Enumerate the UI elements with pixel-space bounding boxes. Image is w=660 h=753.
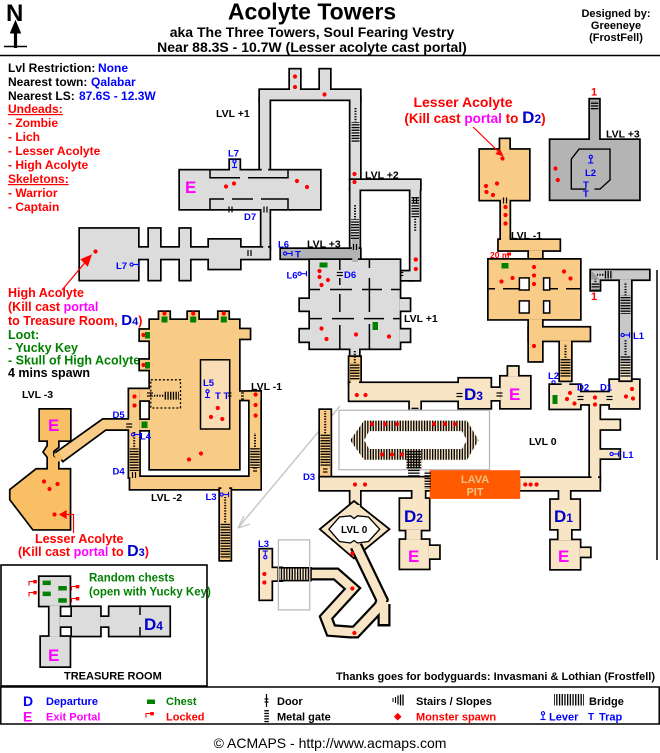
svg-text:Nearest town:: Nearest town: (8, 75, 87, 89)
svg-text:D: D (23, 693, 33, 709)
svg-text:LVL 0: LVL 0 (341, 525, 368, 536)
svg-text:E: E (408, 547, 419, 566)
svg-text:4 mins spawn: 4 mins spawn (8, 366, 90, 380)
svg-text:D1: D1 (600, 383, 613, 394)
svg-text:LVL +2: LVL +2 (365, 170, 399, 182)
svg-text:- Captain: - Captain (8, 200, 59, 214)
svg-text:Monster spawn: Monster spawn (416, 712, 496, 724)
svg-text:(Kill cast portal: (Kill cast portal (8, 300, 98, 314)
svg-text:- Zombie: - Zombie (8, 116, 58, 130)
svg-text:- Lesser Acolyte: - Lesser Acolyte (8, 144, 101, 158)
svg-text:LVL -2: LVL -2 (151, 492, 182, 504)
svg-text:Greeneye: Greeneye (591, 20, 641, 32)
svg-text:(Kill cast portal to D2): (Kill cast portal to D2) (404, 108, 545, 127)
svg-text:Door: Door (277, 696, 303, 708)
svg-text:Bridge: Bridge (589, 696, 624, 708)
svg-text:- High Acolyte: - High Acolyte (8, 158, 89, 172)
svg-text:L5: L5 (203, 378, 215, 389)
svg-text:(open with Yucky Key): (open with Yucky Key) (89, 587, 211, 599)
svg-text:E: E (558, 547, 569, 566)
svg-text:Lesser Acolyte: Lesser Acolyte (413, 94, 512, 110)
svg-text:L6: L6 (278, 240, 289, 251)
svg-text:LAVA: LAVA (461, 474, 489, 486)
svg-text:Locked: Locked (166, 712, 205, 724)
svg-text:LVL +3: LVL +3 (307, 239, 341, 251)
svg-text:(Kill cast portal to D3): (Kill cast portal to D3) (18, 543, 149, 560)
svg-text:Acolyte Towers: Acolyte Towers (228, 0, 396, 25)
svg-text:L3: L3 (258, 539, 269, 550)
svg-text:LVL -3: LVL -3 (22, 389, 53, 401)
svg-text:1: 1 (591, 291, 597, 303)
svg-text:87.6S - 12.3W: 87.6S - 12.3W (79, 89, 156, 103)
svg-text:D7: D7 (244, 212, 256, 223)
svg-text:Designed by:: Designed by: (581, 8, 650, 20)
svg-text:to Treasure Room, D4): to Treasure Room, D4) (8, 312, 142, 329)
svg-text:E: E (509, 385, 520, 404)
svg-text:Skeletons:: Skeletons: (8, 172, 69, 186)
svg-text:- Lich: - Lich (8, 130, 40, 144)
svg-text:T: T (588, 712, 594, 723)
svg-text:1: 1 (591, 87, 597, 99)
svg-text:L7: L7 (228, 149, 239, 160)
svg-text:LVL 0: LVL 0 (529, 436, 557, 448)
svg-text:TREASURE ROOM: TREASURE ROOM (64, 671, 162, 683)
svg-text:L7: L7 (116, 261, 127, 272)
svg-text:LVL +1: LVL +1 (404, 313, 438, 325)
svg-text:Undeads:: Undeads: (8, 102, 63, 116)
svg-text:E: E (48, 646, 59, 665)
svg-text:D4: D4 (113, 467, 126, 478)
svg-text:Thanks goes for bodyguards: In: Thanks goes for bodyguards: Invasmani & … (336, 671, 655, 683)
svg-text:T: T (583, 189, 589, 200)
svg-text:20 m: 20 m (490, 250, 510, 260)
svg-text:D6: D6 (344, 270, 356, 281)
svg-text:aka The Three Towers, Soul Fea: aka The Three Towers, Soul Fearing Vestr… (170, 24, 455, 40)
svg-text:Near 88.3S - 10.7W (Lesser aco: Near 88.3S - 10.7W (Lesser acolyte cast … (157, 39, 467, 55)
svg-text:Stairs / Slopes: Stairs / Slopes (416, 696, 492, 708)
svg-text:LVL -1: LVL -1 (511, 230, 542, 242)
svg-text:Chest: Chest (166, 696, 197, 708)
svg-text:T: T (295, 250, 301, 261)
svg-text:D3: D3 (303, 472, 315, 483)
svg-text:L6: L6 (287, 271, 298, 282)
svg-text:L2: L2 (585, 168, 596, 179)
svg-text:© ACMAPS - http://www.acmaps.c: © ACMAPS - http://www.acmaps.com (214, 735, 447, 751)
svg-text:L1: L1 (623, 450, 635, 461)
svg-text:Exit Portal: Exit Portal (46, 712, 100, 724)
svg-text:Departure: Departure (46, 696, 98, 708)
svg-text:L1: L1 (633, 331, 645, 342)
svg-text:E: E (185, 178, 196, 197)
svg-text:PIT: PIT (466, 487, 483, 499)
svg-text:Nearest LS:: Nearest LS: (8, 89, 75, 103)
svg-text:LVL +1: LVL +1 (216, 108, 250, 120)
svg-text:Trap: Trap (599, 712, 623, 724)
svg-text:High Acolyte: High Acolyte (8, 286, 84, 300)
svg-text:E: E (23, 709, 32, 725)
svg-text:Lever: Lever (549, 712, 579, 724)
svg-text:E: E (48, 416, 59, 435)
svg-text:Random chests: Random chests (89, 573, 175, 585)
svg-text:None: None (98, 61, 128, 75)
svg-text:L3: L3 (206, 492, 217, 503)
svg-text:LVL +3: LVL +3 (606, 129, 640, 141)
svg-text:L4: L4 (140, 432, 152, 443)
svg-text:T T: T T (215, 391, 229, 402)
svg-text:D5: D5 (113, 410, 126, 421)
svg-text:Metal gate: Metal gate (277, 712, 331, 724)
svg-text:Qalabar: Qalabar (91, 75, 136, 89)
svg-text:D2: D2 (577, 383, 589, 394)
svg-text:(FrostFell): (FrostFell) (589, 32, 643, 44)
svg-text:LVL -1: LVL -1 (251, 381, 282, 393)
svg-text:Loot:: Loot: (8, 328, 39, 342)
svg-text:Lesser Acolyte: Lesser Acolyte (35, 532, 124, 546)
svg-text:- Warrior: - Warrior (8, 186, 58, 200)
svg-text:Lvl Restriction:: Lvl Restriction: (8, 61, 95, 75)
